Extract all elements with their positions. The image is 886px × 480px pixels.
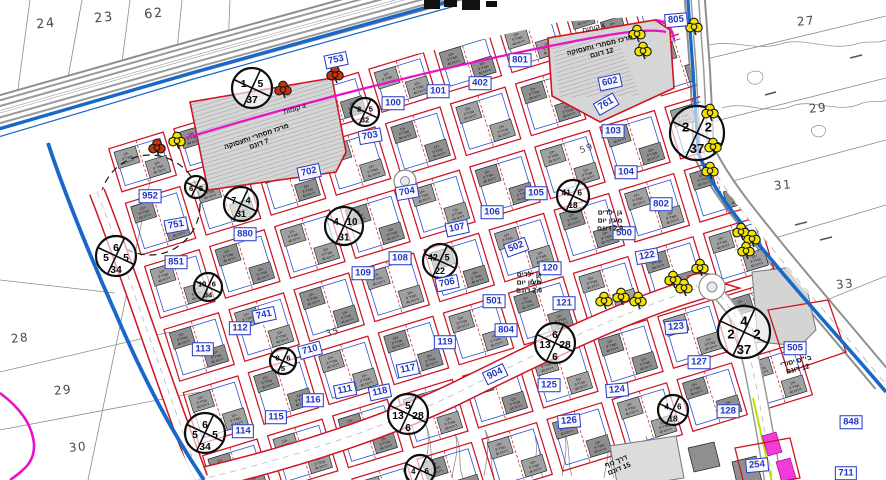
plot-number-label: 114 [232,424,254,438]
plot-number-label: 741 [251,306,276,324]
plot-number-label: 113 [192,342,214,356]
parcel-number: 62 [143,6,164,23]
plot-number-label: 706 [434,274,459,292]
parcel-number: 59 [578,142,595,156]
parcel-number: 35 [325,326,342,339]
plot-number-label: 123 [664,319,688,334]
plot-number-label: 402 [469,76,492,90]
zoning-annotation: 4 קומות [582,23,606,36]
plot-number-label: 702 [296,163,321,181]
plot-number-label: 106 [481,205,504,219]
plan-map-canvas[interactable]: 13+ממ"ד 9דירות 4013+ממ"ד 9דירות 4013+ממ"… [0,0,886,480]
plot-number-label: 119 [434,335,456,349]
parcel-number: 29 [808,100,828,116]
zoning-annotation: גן ילדיםמעון יום2.9 דונם [597,209,623,232]
plot-number-label: 125 [538,378,561,392]
plot-number-label: 602 [597,73,622,91]
plot-number-label: 101 [427,84,450,98]
plot-number-label: 107 [444,219,469,237]
plot-number-label: 100 [382,96,405,110]
zoning-annotation: בי"ס יסודי12 דונם [780,355,815,378]
plot-number-label: 103 [602,124,625,138]
map-overlay-layer: 9527518808517531001014028017037027041051… [0,0,886,480]
plot-number-label: 952 [139,189,162,203]
plot-number-label: 116 [302,393,324,407]
plot-number-label: 111 [333,381,357,399]
plot-number-label: 105 [525,186,548,200]
plot-number-label: 761 [593,92,620,115]
plot-number-label: 108 [389,251,412,265]
parcel-number: 23 [93,10,114,27]
plot-number-label: 804 [495,323,518,337]
plot-number-label: 126 [557,413,581,428]
plot-number-label: 751 [164,216,189,233]
plot-number-label: 848 [840,415,863,429]
plot-number-label: 505 [784,341,807,355]
plot-number-label: 805 [664,12,688,27]
plot-number-label: 117 [396,360,421,378]
plot-number-label: 904 [482,363,508,385]
zoning-annotation: 4 קומות [283,103,308,117]
parcel-number: 27 [796,13,816,29]
parcel-number: 30 [68,439,88,455]
plot-number-label: 703 [358,127,383,144]
plot-number-label: 120 [539,261,562,275]
plot-number-label: 704 [395,183,420,200]
plot-number-label: 501 [483,294,506,308]
plot-number-label: 122 [635,247,660,264]
plot-number-label: 502 [503,237,529,258]
zoning-annotation: דרך נוף15 דונם [604,454,632,478]
plot-number-label: 254 [745,457,769,472]
parcel-number: 24 [35,16,56,33]
plot-number-label: 802 [650,197,673,211]
plot-number-label: 118 [368,383,393,401]
zoning-annotation: מרכז מסחרי ותעסוקה7 דונם [223,123,292,160]
parcel-number: 33 [835,276,855,292]
plot-number-label: 121 [553,296,576,310]
plot-number-label: 112 [229,321,251,335]
plot-number-label: 115 [265,410,287,424]
plot-number-label: 109 [352,266,375,280]
plot-number-label: 104 [615,165,638,179]
parcel-number: 31 [773,177,793,193]
plot-number-label: 711 [835,466,857,480]
plot-number-label: 127 [688,355,711,369]
plot-number-label: 710 [297,341,323,360]
plot-number-label: 851 [165,255,188,269]
zoning-annotation: גן ילדיםמעון יום2.6 דונם [516,271,542,294]
plot-number-label: 124 [605,382,629,397]
zoning-annotation: מרכז מסחרי ותעסוקה12 דונם [566,34,636,66]
plot-number-label: 128 [717,404,740,418]
plot-number-label: 801 [509,53,532,67]
plot-number-label: 880 [234,227,257,241]
parcel-number: 29 [53,382,73,398]
parcel-number: 28 [10,330,30,346]
plot-number-label: 753 [323,51,348,69]
